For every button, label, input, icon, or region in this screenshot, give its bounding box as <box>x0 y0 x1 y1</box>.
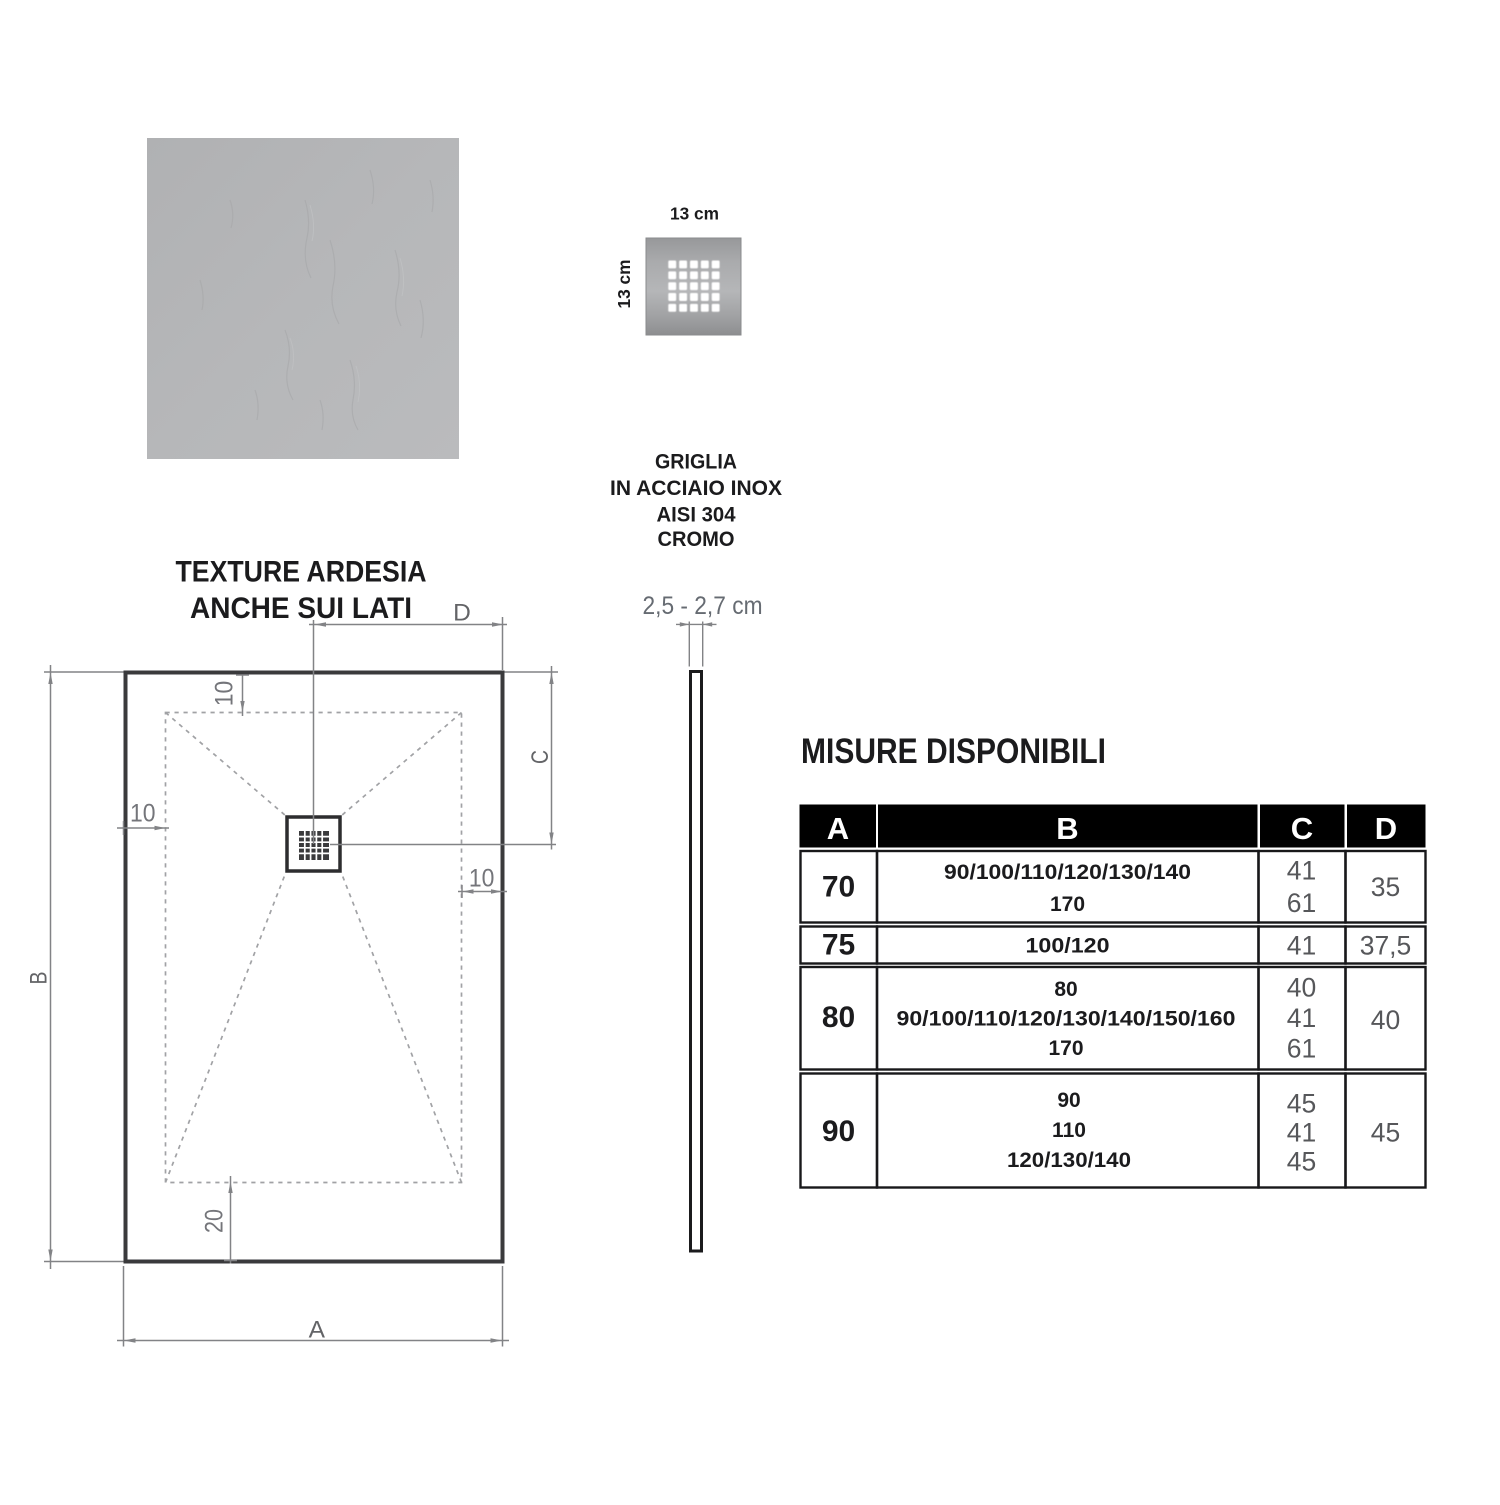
svg-text:90: 90 <box>1057 1089 1080 1112</box>
svg-text:100/120: 100/120 <box>1026 935 1110 958</box>
svg-text:20: 20 <box>201 1209 229 1233</box>
svg-text:41: 41 <box>1287 1003 1316 1033</box>
svg-text:AISI 304: AISI 304 <box>657 504 736 527</box>
svg-text:120/130/140: 120/130/140 <box>1007 1149 1131 1172</box>
svg-text:41: 41 <box>1287 856 1316 886</box>
svg-text:41: 41 <box>1287 1118 1316 1148</box>
svg-text:ANCHE SUI LATI: ANCHE SUI LATI <box>190 592 412 625</box>
svg-text:35: 35 <box>1371 872 1400 902</box>
svg-text:61: 61 <box>1287 1034 1316 1064</box>
svg-text:13 cm: 13 cm <box>670 204 719 224</box>
svg-text:GRIGLIA: GRIGLIA <box>655 451 737 474</box>
svg-text:80: 80 <box>822 1001 855 1034</box>
svg-text:A: A <box>309 1317 326 1344</box>
svg-text:40: 40 <box>1287 973 1316 1003</box>
svg-text:B: B <box>1056 811 1078 846</box>
svg-text:90: 90 <box>822 1115 855 1148</box>
svg-text:61: 61 <box>1287 888 1316 918</box>
svg-text:40: 40 <box>1371 1005 1400 1035</box>
svg-text:C: C <box>1291 811 1313 846</box>
svg-text:CROMO: CROMO <box>658 528 735 551</box>
svg-text:10: 10 <box>130 800 156 828</box>
svg-text:170: 170 <box>1050 893 1085 916</box>
svg-text:D: D <box>1375 811 1397 846</box>
svg-text:A: A <box>827 811 849 846</box>
svg-text:80: 80 <box>1054 978 1077 1001</box>
svg-text:45: 45 <box>1287 1089 1316 1119</box>
svg-text:110: 110 <box>1052 1119 1086 1142</box>
svg-text:TEXTURE ARDESIA: TEXTURE ARDESIA <box>176 556 427 589</box>
svg-text:90/100/110/120/130/140/150/160: 90/100/110/120/130/140/150/160 <box>897 1008 1236 1031</box>
svg-text:B: B <box>26 972 53 985</box>
svg-text:170: 170 <box>1048 1037 1083 1060</box>
svg-text:13 cm: 13 cm <box>614 260 634 309</box>
svg-text:10: 10 <box>211 681 239 707</box>
svg-text:45: 45 <box>1371 1118 1400 1148</box>
svg-text:C: C <box>527 750 554 764</box>
svg-text:MISURE DISPONIBILI: MISURE DISPONIBILI <box>801 732 1106 771</box>
svg-text:75: 75 <box>822 929 855 962</box>
svg-text:10: 10 <box>469 865 495 893</box>
svg-text:90/100/110/120/130/140: 90/100/110/120/130/140 <box>944 861 1191 884</box>
svg-text:2,5 - 2,7 cm: 2,5 - 2,7 cm <box>643 592 763 620</box>
svg-text:45: 45 <box>1287 1147 1316 1177</box>
svg-text:D: D <box>453 600 471 627</box>
svg-text:41: 41 <box>1287 931 1316 961</box>
svg-text:70: 70 <box>822 871 855 904</box>
svg-text:37,5: 37,5 <box>1360 931 1412 961</box>
svg-text:IN ACCIAIO INOX: IN ACCIAIO INOX <box>610 477 782 500</box>
